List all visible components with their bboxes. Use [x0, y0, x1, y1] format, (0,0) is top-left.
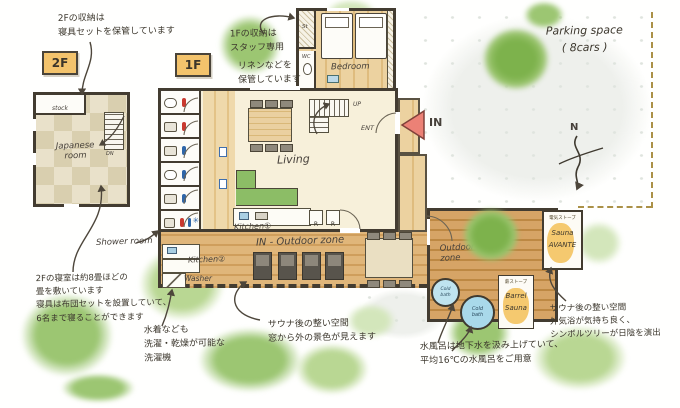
- storage-st: [299, 11, 316, 49]
- note-bedroom-2f: 2Fの寝室は約8畳ほどの 畳を敷いています 寝具は布団セットを設置していて、 6…: [36, 271, 172, 326]
- sink-icon: [164, 218, 175, 228]
- bedroom-label: Bedroom: [331, 62, 370, 73]
- barrel-sauna: 薪ストーブ Barrel Sauna: [498, 275, 534, 329]
- chair-icon: [367, 232, 380, 240]
- fridge-label: R: [331, 221, 335, 228]
- entry-porch: [398, 98, 420, 154]
- avante-sauna: 電気ストーブ Sauna AVANTE: [542, 210, 583, 270]
- main-building: ✳ UP ENT Living R R: [158, 88, 398, 232]
- side-deck: [398, 154, 427, 232]
- stove-icon: [255, 212, 268, 220]
- door-tag-icon: [219, 147, 227, 157]
- sink-icon: [239, 212, 249, 220]
- door-gap: [427, 219, 430, 245]
- st-label: St: [302, 24, 308, 30]
- bench-stool: [325, 252, 344, 280]
- floor-tag-1f: 1F: [175, 53, 211, 77]
- chair-icon: [265, 144, 278, 152]
- note-storage-1f: 1Fの収納は スタッフ専用: [230, 28, 284, 57]
- chair-icon: [250, 100, 263, 108]
- washroom: [161, 187, 199, 211]
- note-linen-1f: リネンなどを 保管しています: [238, 59, 301, 88]
- parking-label: Parking space ( 8cars ): [546, 21, 624, 56]
- note-outdoor-cooldown: サウナ後の整い空間 外気浴が気持ち良く、 シンボルツリーが日陰を演出: [550, 301, 661, 342]
- bench-stool: [302, 252, 321, 280]
- barrel-heater-label: 薪ストーブ: [499, 279, 533, 285]
- closet-strip: [387, 11, 393, 88]
- sink-icon: [164, 122, 177, 132]
- cold-bath-label: Cold bath: [472, 307, 483, 319]
- tree-blob: [48, 368, 148, 408]
- toilet-icon: [303, 63, 312, 75]
- corridor: [203, 91, 235, 229]
- shower-room: ✳: [161, 211, 199, 233]
- bed: [321, 13, 353, 59]
- chair-icon: [280, 144, 293, 152]
- fridge: R: [309, 210, 323, 225]
- door-gap: [33, 153, 36, 165]
- person-icon-blue: [182, 170, 186, 179]
- stock-room-label: stock: [52, 105, 68, 112]
- washroom: [161, 115, 199, 139]
- chair-icon: [383, 280, 396, 288]
- person-icon-blue: [182, 146, 186, 155]
- chair-icon: [367, 280, 380, 288]
- stairs-1f-lower: [309, 117, 329, 133]
- kitchen1-label: Kitchen①: [234, 221, 272, 231]
- sink-icon: [164, 146, 177, 156]
- note-storage-2f: 2Fの収納は 寝具セットを保管しています: [58, 11, 175, 41]
- connector-storage2f: [82, 42, 91, 94]
- avante-heater-label: 電気ストーブ: [544, 215, 581, 221]
- shower-head-icon: ✳: [192, 216, 199, 233]
- person-icon-blue: [182, 194, 186, 203]
- bench-stool: [278, 252, 297, 280]
- note-cold-bath: 水風呂は地下水を汲み上げていて、 平均16℃の水風呂をご用意: [420, 339, 564, 369]
- chair-icon: [399, 280, 412, 288]
- north-label: N: [570, 122, 578, 133]
- door-tag-icon: [219, 179, 227, 189]
- kitchen2-label: Kitchen②: [188, 254, 226, 264]
- entrance-door-gap: [395, 112, 400, 134]
- chair-icon: [265, 100, 278, 108]
- note-washer: 水着なども 洗濯・乾燥が可能な 洗濯機: [144, 323, 226, 366]
- bedroom-wing: St WC Bedroom: [296, 8, 396, 91]
- person-icon-red: [182, 98, 186, 107]
- toilet-room: [161, 163, 199, 187]
- person-icon-red: [180, 218, 183, 227]
- hand-drawn-site-plan: stock DN Japanese room St WC Bedroom: [0, 0, 680, 408]
- chair-icon: [383, 232, 396, 240]
- toilet-icon: [164, 170, 177, 180]
- door-gap: [64, 204, 79, 207]
- deck-door-gap: [340, 228, 360, 233]
- person-icon-red: [182, 122, 186, 131]
- bed: [355, 13, 387, 59]
- stairs-up-label: UP: [353, 101, 361, 108]
- outdoor-table: [365, 238, 413, 278]
- note-deck-cooldown: サウナ後の整い空間 窓から外の景色が見えます: [268, 317, 376, 347]
- chair-icon: [399, 232, 412, 240]
- shower-room-label: Shower room: [96, 236, 153, 248]
- in-arrow-label: IN: [429, 116, 442, 129]
- bench-stool: [253, 252, 272, 280]
- tv-icon: [327, 75, 339, 83]
- japanese-room-label: Japanese room: [56, 140, 95, 161]
- chair-icon: [250, 144, 263, 152]
- sink-icon: [167, 247, 177, 254]
- wc-label: WC: [302, 54, 310, 60]
- chair-icon: [280, 100, 293, 108]
- stairs-2f: [104, 112, 124, 150]
- sofa: [236, 188, 298, 206]
- stairs-1f: [309, 99, 349, 117]
- fridge-label: R: [314, 221, 318, 228]
- fridge: R: [326, 210, 340, 225]
- avante-sauna-label: Sauna AVANTE: [544, 228, 581, 252]
- property-boundary-line: [651, 12, 653, 208]
- person-icon-blue: [188, 218, 191, 227]
- property-boundary-line: [578, 206, 652, 208]
- floor-tag-2f-label: 2F: [52, 56, 69, 70]
- cold-bath-large: Cold bath: [460, 295, 495, 330]
- pillow-icon: [359, 17, 383, 28]
- floor-tag-1f-label: 1F: [185, 58, 202, 72]
- stock-room: stock: [36, 95, 86, 115]
- floor-tag-2f: 2F: [42, 51, 78, 75]
- sink-icon: [164, 194, 177, 204]
- sanitary-strip: ✳: [161, 91, 201, 229]
- door-gap: [33, 119, 36, 131]
- cold-bath-label: Cold bath: [440, 287, 450, 297]
- toilet-room: [161, 91, 199, 115]
- toilet-icon: [164, 98, 177, 108]
- dining-table: [248, 108, 292, 142]
- living-label: Living: [277, 152, 310, 166]
- floor-2f-plan: stock DN Japanese room: [33, 92, 130, 207]
- symbol-tree: [452, 198, 530, 272]
- cold-bath-small: Cold bath: [431, 278, 460, 307]
- stairs-dn-label: DN: [106, 151, 114, 157]
- barrel-sauna-label: Barrel Sauna: [499, 291, 533, 315]
- washroom: [161, 139, 199, 163]
- pillow-icon: [325, 17, 349, 28]
- window-gap: [327, 8, 349, 11]
- washer-label: Washer: [184, 274, 212, 283]
- entrance-label: ENT: [361, 124, 374, 132]
